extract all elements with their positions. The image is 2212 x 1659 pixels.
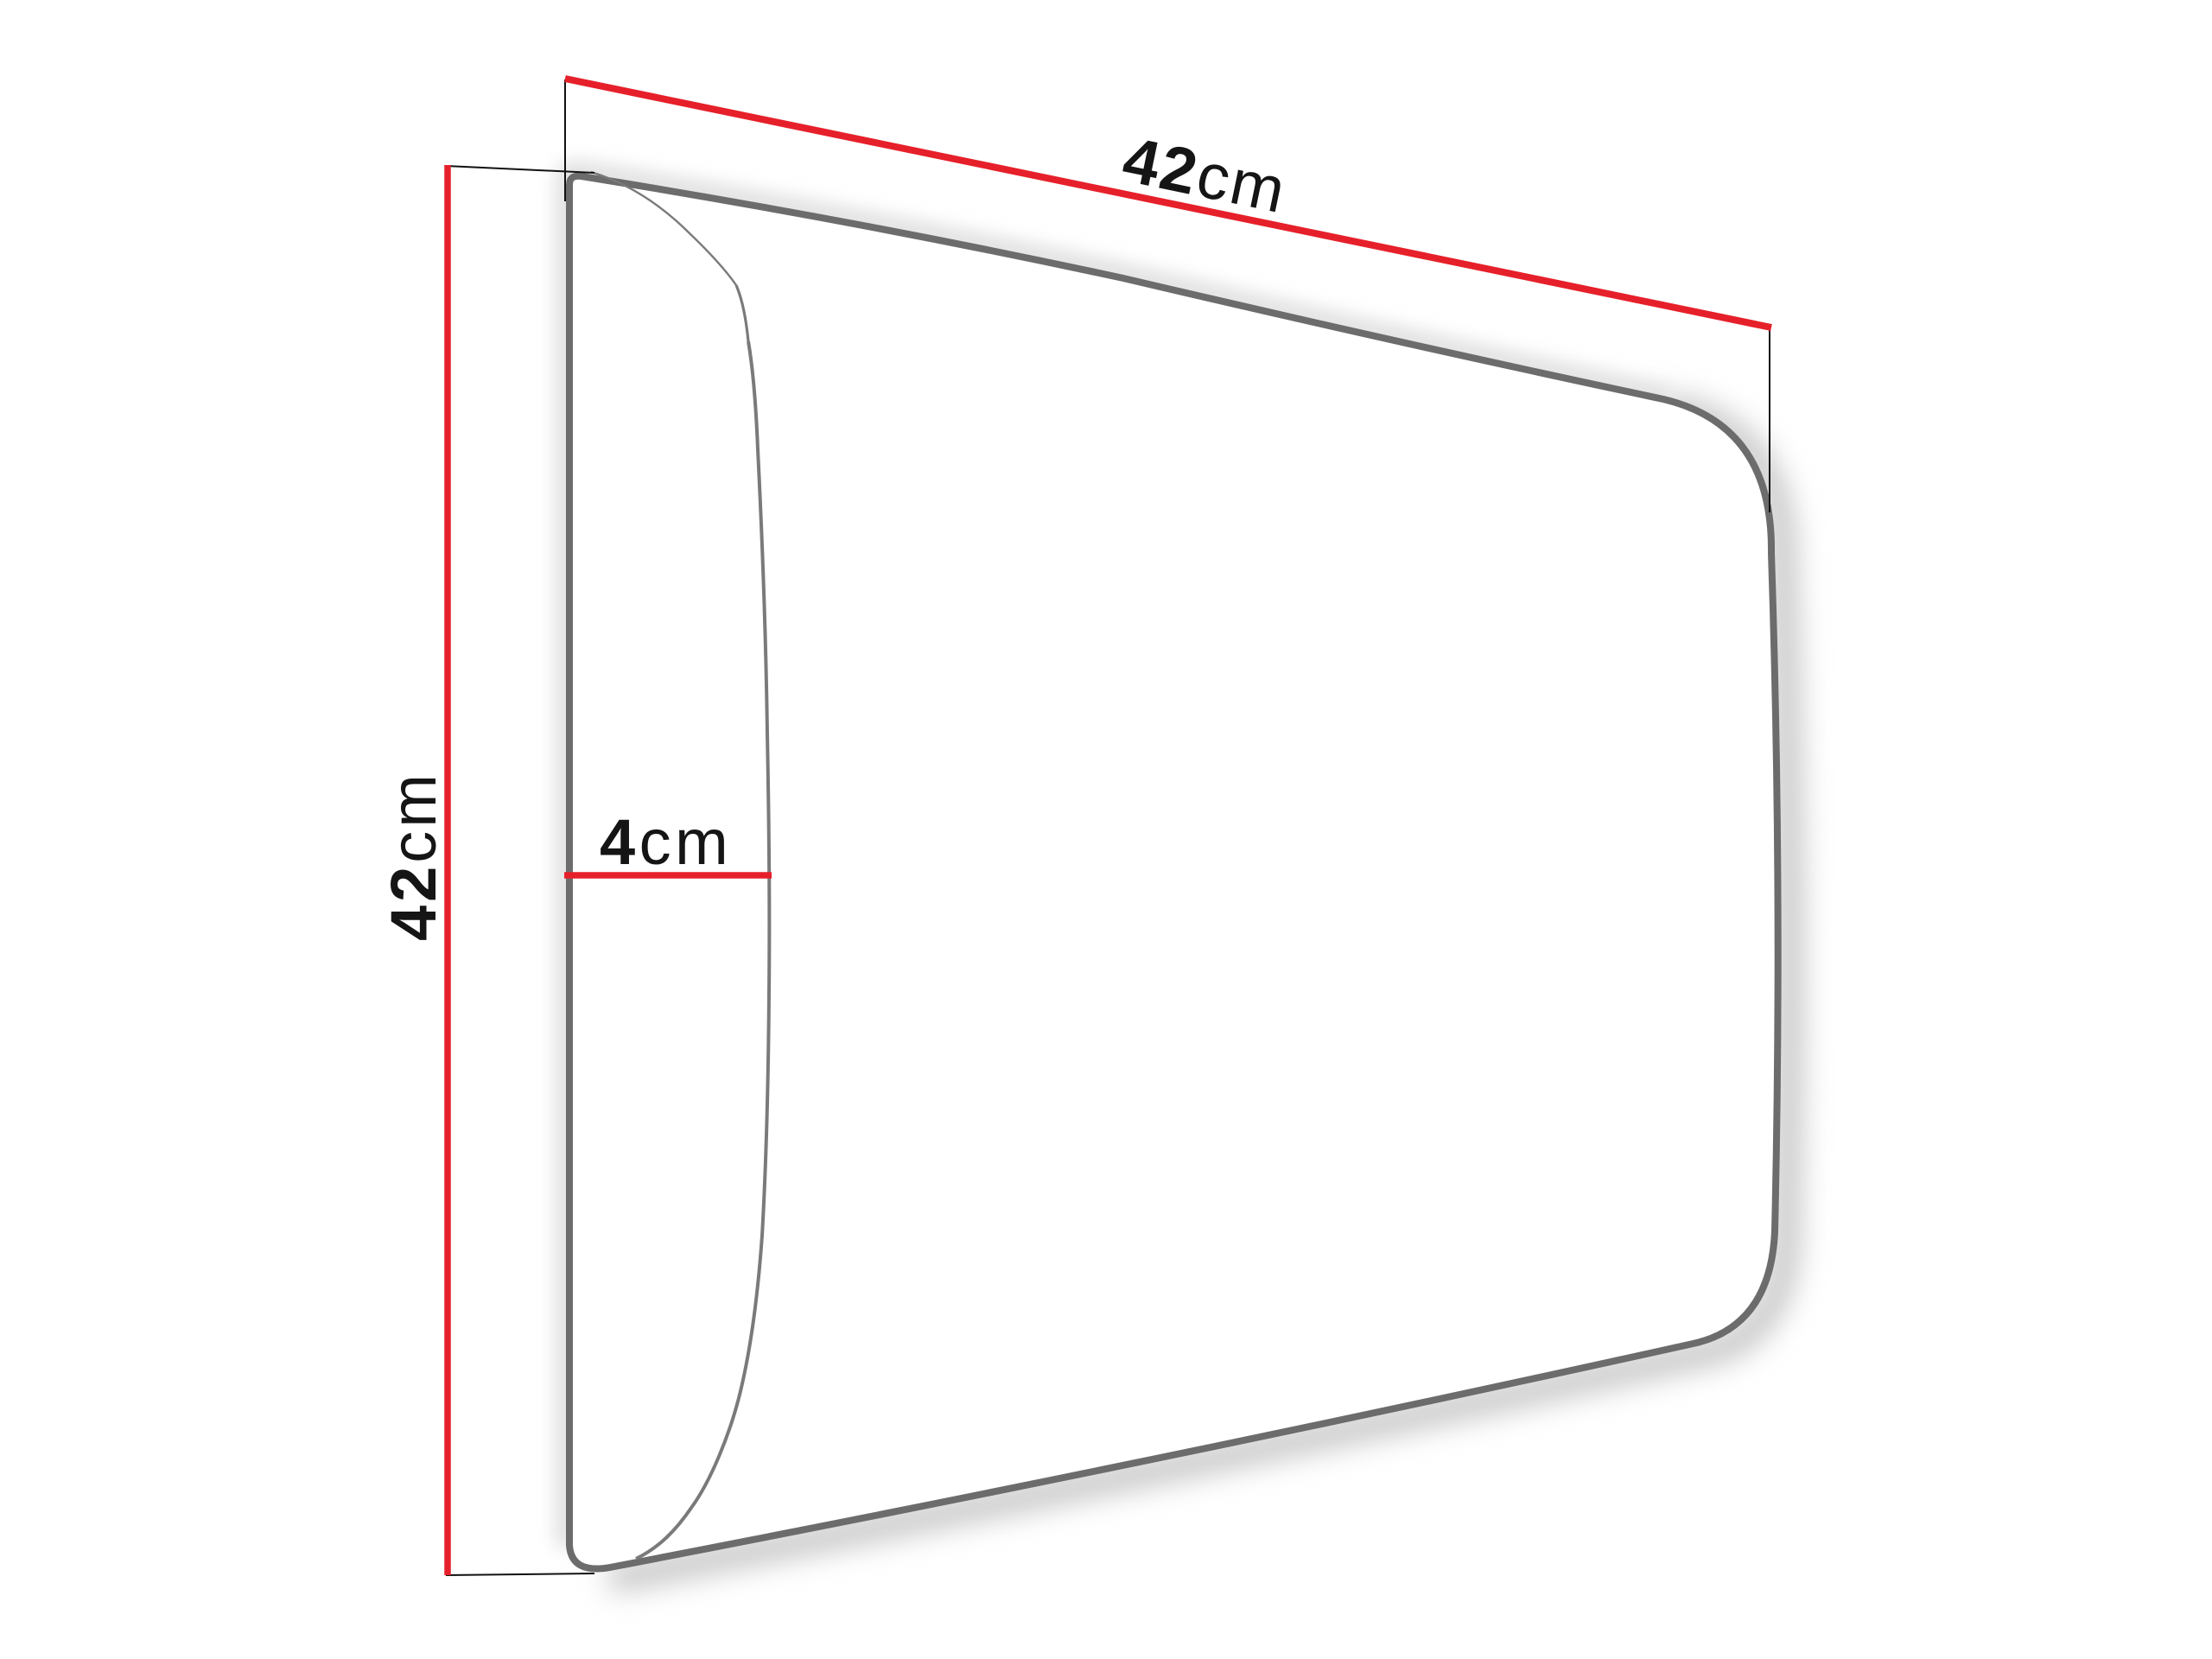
svg-text:42cm: 42cm (1117, 123, 1294, 226)
svg-text:4cm: 4cm (600, 806, 732, 878)
svg-text:42cm: 42cm (378, 771, 449, 941)
